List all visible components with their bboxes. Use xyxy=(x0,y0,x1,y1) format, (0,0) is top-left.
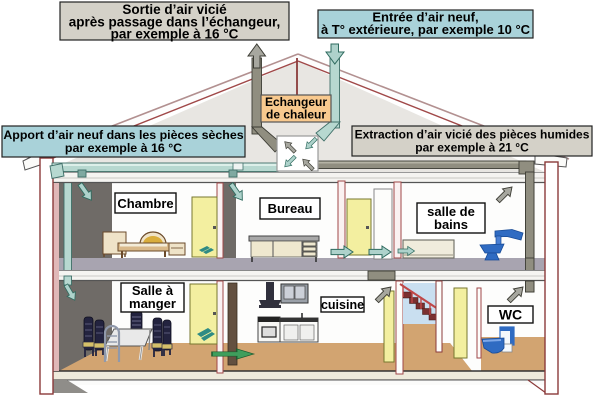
svg-text:bains: bains xyxy=(434,217,468,232)
svg-text:Extraction d’air vicié des piè: Extraction d’air vicié des pièces humide… xyxy=(355,128,590,142)
svg-text:Apport d’air neuf dans les piè: Apport d’air neuf dans les pièces sèches xyxy=(3,128,243,142)
svg-text:WC: WC xyxy=(499,307,522,323)
svg-text:par exemple à 21 °C: par exemple à 21 °C xyxy=(415,141,529,155)
svg-text:de chaleur: de chaleur xyxy=(266,108,326,122)
svg-text:Chambre: Chambre xyxy=(117,196,173,211)
svg-text:par exemple à 16 °C: par exemple à 16 °C xyxy=(65,141,182,155)
svg-text:à T° extérieure, par exemple 1: à T° extérieure, par exemple 10 °C xyxy=(321,22,531,37)
svg-text:Bureau: Bureau xyxy=(268,201,313,216)
svg-text:manger: manger xyxy=(129,296,176,311)
svg-text:par exemple à 16 °C: par exemple à 16 °C xyxy=(111,27,239,42)
svg-text:cuisine: cuisine xyxy=(321,298,364,312)
